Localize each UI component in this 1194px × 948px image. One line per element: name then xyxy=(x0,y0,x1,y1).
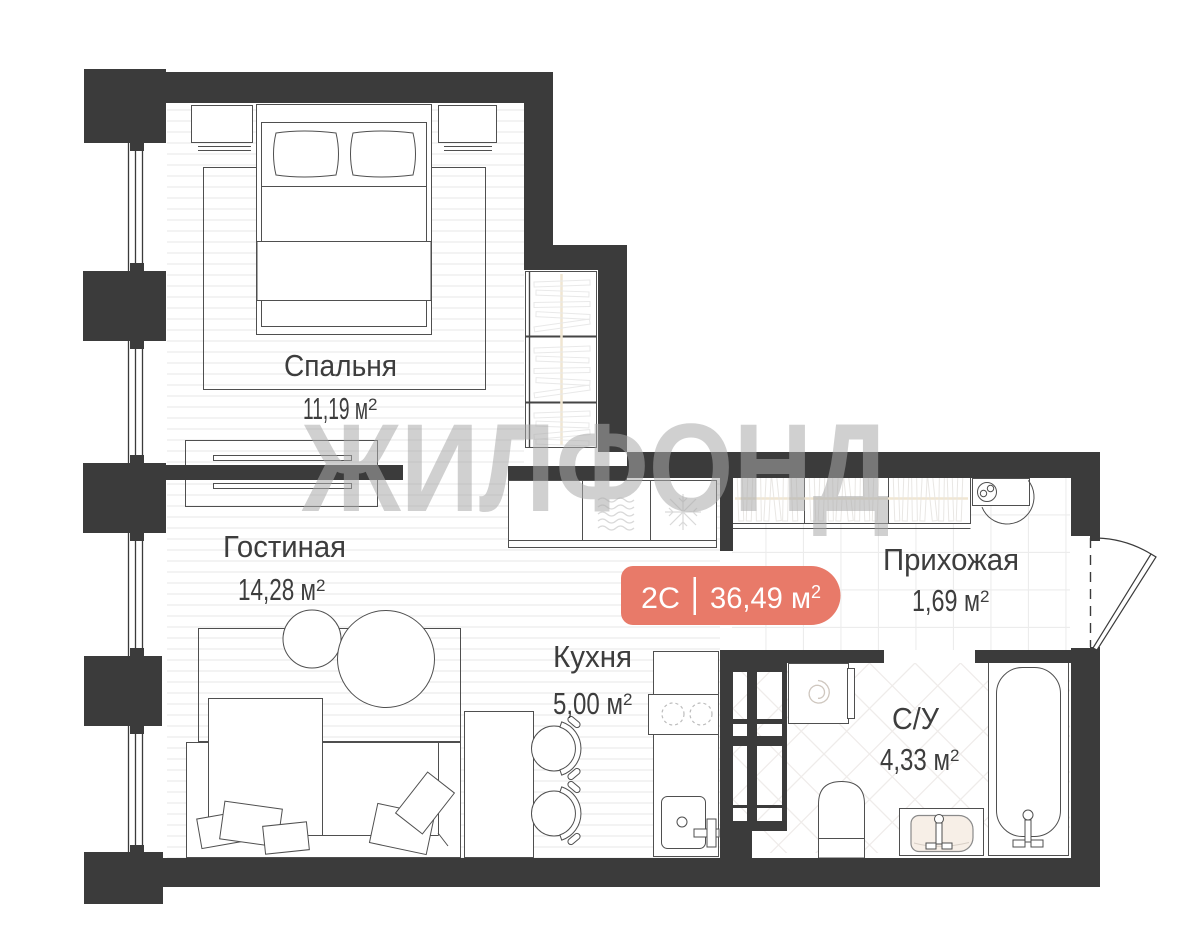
svg-text:5,00 м2: 5,00 м2 xyxy=(553,686,632,721)
svg-text:1,69 м2: 1,69 м2 xyxy=(912,583,989,618)
svg-text:Прихожая: Прихожая xyxy=(883,542,1019,577)
svg-text:Спальня: Спальня xyxy=(284,348,397,383)
svg-text:Кухня: Кухня xyxy=(553,639,632,674)
svg-text:4,33 м2: 4,33 м2 xyxy=(880,742,959,777)
svg-text:36,49 м2: 36,49 м2 xyxy=(710,582,821,615)
svg-text:ЖИЛФОНД: ЖИЛФОНД xyxy=(301,399,890,538)
svg-text:2С: 2С xyxy=(641,582,680,615)
svg-text:С/У: С/У xyxy=(892,701,939,736)
svg-text:14,28 м2: 14,28 м2 xyxy=(238,572,325,607)
